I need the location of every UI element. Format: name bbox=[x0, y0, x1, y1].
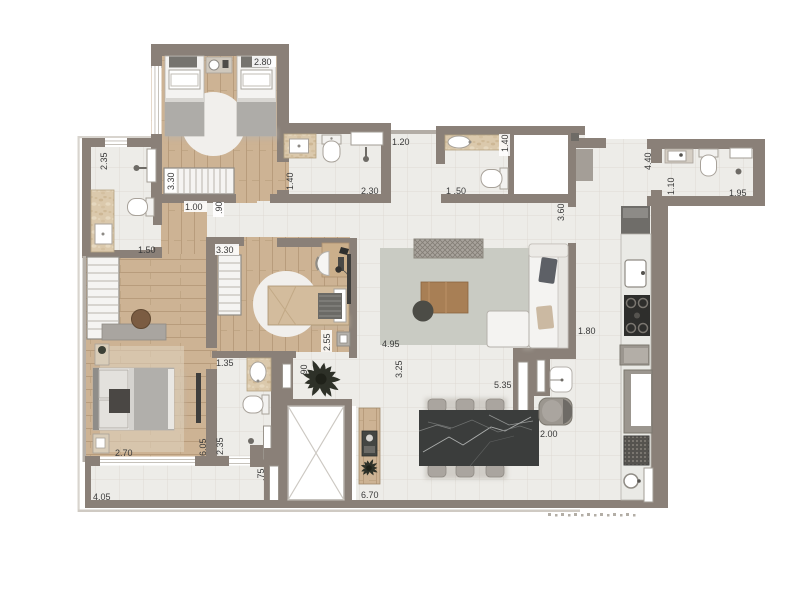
svg-text:.90: .90 bbox=[299, 364, 309, 377]
svg-text:4.95: 4.95 bbox=[382, 339, 400, 349]
svg-text:1.00: 1.00 bbox=[185, 202, 203, 212]
svg-text:1.10: 1.10 bbox=[666, 177, 676, 195]
svg-text:4.40: 4.40 bbox=[643, 152, 653, 170]
svg-text:2.55: 2.55 bbox=[322, 333, 332, 351]
svg-text:1.40: 1.40 bbox=[285, 172, 295, 190]
svg-text:2.80: 2.80 bbox=[254, 57, 272, 67]
svg-text:5.35: 5.35 bbox=[494, 380, 512, 390]
svg-text:2.00: 2.00 bbox=[540, 429, 558, 439]
svg-text:1.35: 1.35 bbox=[216, 358, 234, 368]
svg-text:1.95: 1.95 bbox=[729, 188, 747, 198]
svg-text:4.05: 4.05 bbox=[93, 492, 111, 502]
svg-text:3.25: 3.25 bbox=[394, 360, 404, 378]
svg-text:2.70: 2.70 bbox=[115, 448, 133, 458]
svg-text:2.35: 2.35 bbox=[99, 152, 109, 170]
svg-text:.90: .90 bbox=[214, 201, 224, 214]
svg-text:2.35: 2.35 bbox=[215, 437, 225, 455]
svg-text:1 .50: 1 .50 bbox=[446, 186, 466, 196]
svg-text:3.60: 3.60 bbox=[556, 203, 566, 221]
svg-text:2.30: 2.30 bbox=[361, 186, 379, 196]
svg-text:.75: .75 bbox=[256, 468, 266, 481]
svg-text:6.05: 6.05 bbox=[198, 438, 208, 456]
svg-text:1.80: 1.80 bbox=[578, 326, 596, 336]
svg-text:1.40: 1.40 bbox=[500, 134, 510, 152]
svg-text:6.70: 6.70 bbox=[361, 490, 379, 500]
svg-text:1.50: 1.50 bbox=[138, 245, 156, 255]
svg-text:3.30: 3.30 bbox=[216, 245, 234, 255]
svg-text:3.30: 3.30 bbox=[166, 172, 176, 190]
svg-text:1.20: 1.20 bbox=[392, 137, 410, 147]
